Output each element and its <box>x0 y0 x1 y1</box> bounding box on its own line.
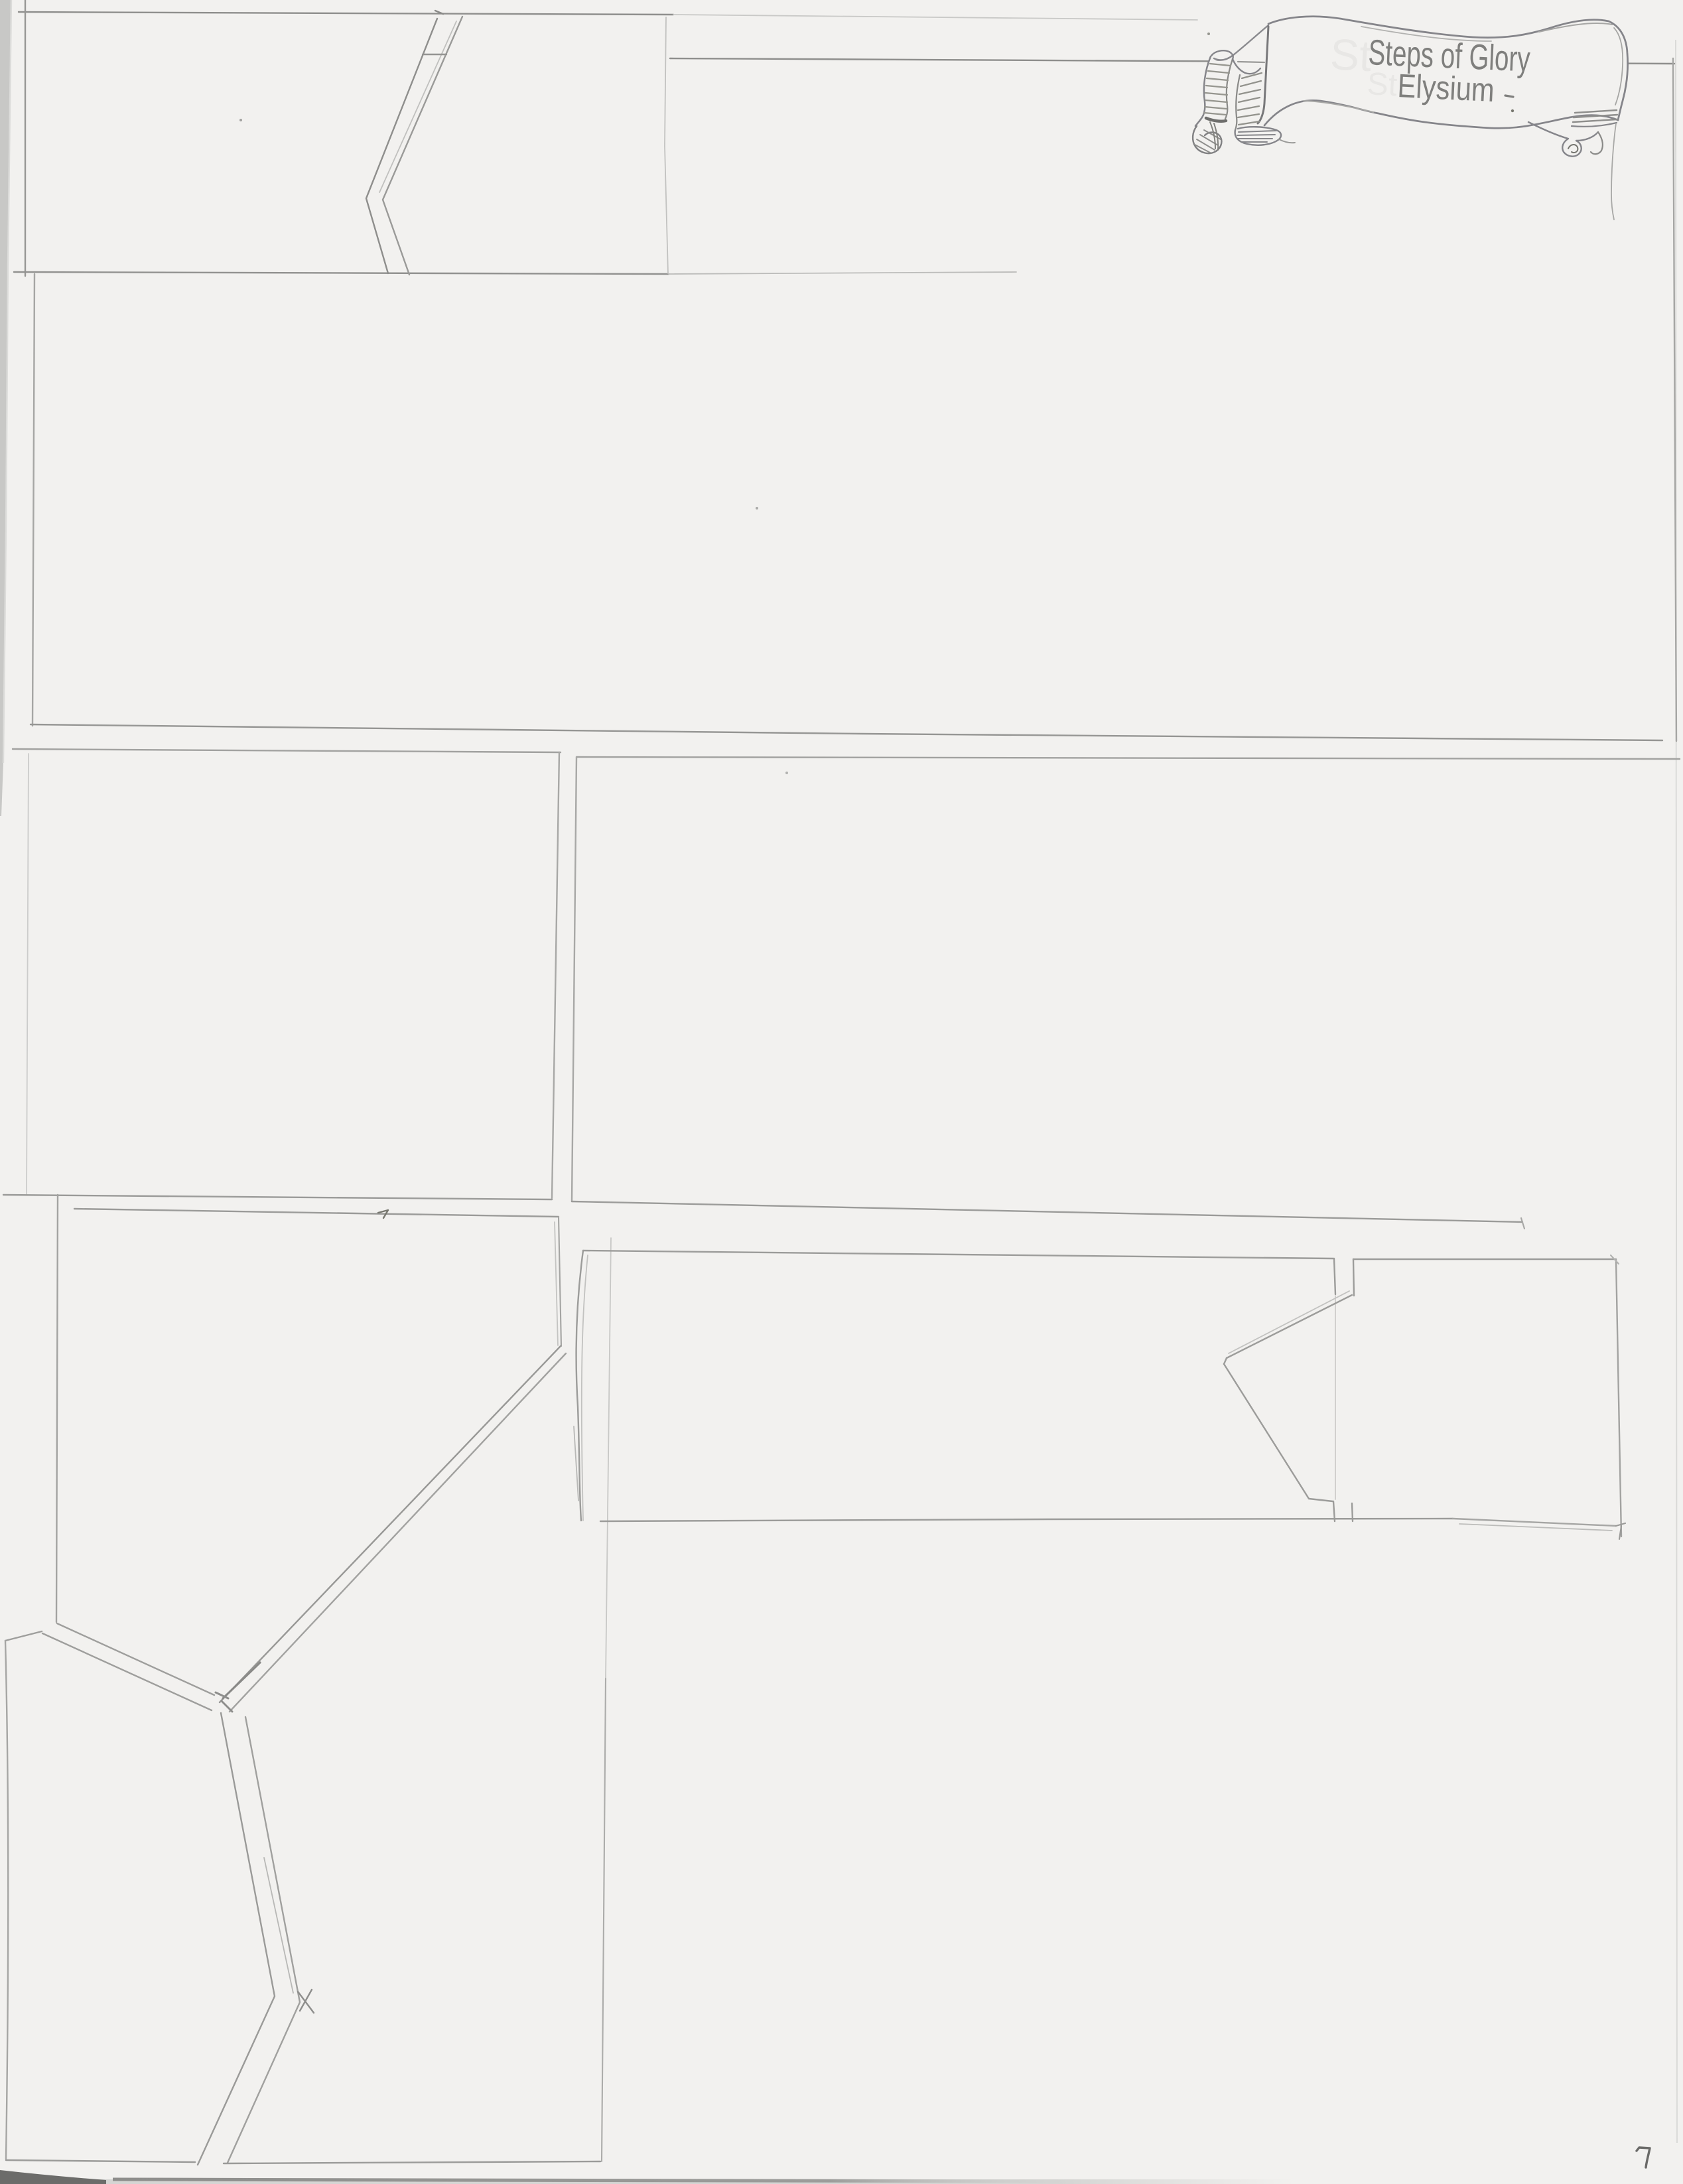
svg-text:St: St <box>1329 29 1373 80</box>
svg-text:Elysium: Elysium <box>1396 67 1495 109</box>
